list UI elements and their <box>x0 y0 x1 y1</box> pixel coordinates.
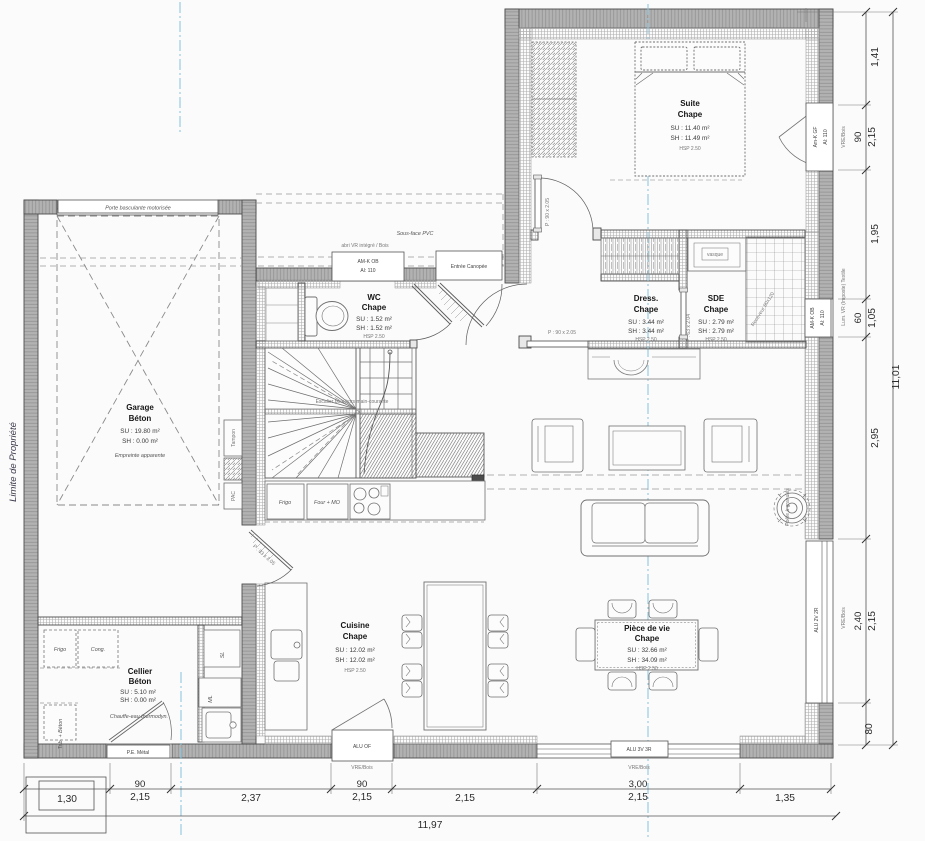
svg-text:2,15: 2,15 <box>867 611 878 631</box>
svg-text:AM-K OB: AM-K OB <box>810 307 816 329</box>
svg-text:Al: 110: Al: 110 <box>823 129 829 144</box>
svg-text:Four + MO: Four + MO <box>314 500 341 506</box>
svg-text:80: 80 <box>864 723 875 735</box>
svg-text:ML: ML <box>208 695 214 703</box>
svg-text:SU : 32.66 m²: SU : 32.66 m² <box>627 647 666 654</box>
svg-text:Frigo: Frigo <box>279 500 291 506</box>
svg-text:Lum. VR (Imposte) Textile: Lum. VR (Imposte) Textile <box>841 268 847 326</box>
svg-text:1,41: 1,41 <box>870 47 881 67</box>
svg-text:Frigo: Frigo <box>54 647 66 653</box>
svg-text:WC: WC <box>367 293 381 302</box>
svg-text:SL: SL <box>220 652 226 659</box>
svg-text:HSP 2.50: HSP 2.50 <box>363 334 385 340</box>
svg-text:VRE/Bois: VRE/Bois <box>841 126 847 148</box>
svg-text:Chauffe-eau thermodyn.: Chauffe-eau thermodyn. <box>110 714 168 720</box>
svg-text:HSP 2.50: HSP 2.50 <box>679 146 701 152</box>
svg-text:Cong.: Cong. <box>91 647 105 653</box>
svg-text:Cuisine: Cuisine <box>341 621 370 630</box>
svg-text:Garage: Garage <box>126 403 154 412</box>
svg-text:Cellier: Cellier <box>128 667 152 676</box>
svg-text:SDE: SDE <box>708 294 725 303</box>
svg-text:SH : 0.00 m²: SH : 0.00 m² <box>120 697 156 704</box>
svg-text:Chape: Chape <box>362 303 387 312</box>
svg-text:SH : 34.09 m²: SH : 34.09 m² <box>627 657 666 664</box>
svg-text:HSP 2.50: HSP 2.50 <box>344 668 366 674</box>
svg-text:SU : 2.79 m²: SU : 2.79 m² <box>698 319 734 326</box>
svg-text:2,40: 2,40 <box>853 612 864 631</box>
svg-text:1,30: 1,30 <box>57 794 77 805</box>
svg-text:SH : 11.49 m²: SH : 11.49 m² <box>671 135 710 142</box>
svg-text:VRE/Bois: VRE/Bois <box>628 765 650 771</box>
svg-text:Limite de Propriété: Limite de Propriété <box>8 422 19 502</box>
svg-text:Tab. + Béton: Tab. + Béton <box>58 719 64 750</box>
svg-text:SU : 5.10 m²: SU : 5.10 m² <box>120 689 156 696</box>
svg-text:2,37: 2,37 <box>241 793 261 804</box>
svg-text:Dress.: Dress. <box>634 294 658 303</box>
svg-text:P : 90 x 2.05: P : 90 x 2.05 <box>548 330 576 336</box>
svg-text:SU : 1.52 m²: SU : 1.52 m² <box>356 316 392 323</box>
svg-text:SH : 2.79 m²: SH : 2.79 m² <box>698 328 734 335</box>
svg-text:Béton: Béton <box>129 414 152 423</box>
svg-text:11,97: 11,97 <box>418 820 443 831</box>
svg-text:SU : 19.80 m²: SU : 19.80 m² <box>120 428 159 435</box>
svg-text:3,00: 3,00 <box>629 779 648 790</box>
svg-text:abri VR intégré / Bois: abri VR intégré / Bois <box>341 243 389 249</box>
svg-text:Al: 110: Al: 110 <box>820 310 826 325</box>
svg-text:Al: 110: Al: 110 <box>360 268 375 274</box>
svg-text:Chape: Chape <box>704 305 729 314</box>
svg-text:Sous-face PVC: Sous-face PVC <box>397 231 434 237</box>
svg-text:Suite: Suite <box>680 99 700 108</box>
svg-text:AM-K OB: AM-K OB <box>357 259 379 265</box>
svg-text:Tampon: Tampon <box>231 429 237 447</box>
svg-text:Porte basculante motorisée: Porte basculante motorisée <box>105 206 171 212</box>
svg-text:90: 90 <box>853 132 864 143</box>
svg-text:P : 63 x 2.04: P : 63 x 2.04 <box>686 314 692 342</box>
svg-text:Chape: Chape <box>678 110 703 119</box>
svg-text:SU : 3.44 m²: SU : 3.44 m² <box>628 319 664 326</box>
svg-text:Poêle à granulés: Poêle à granulés <box>785 488 791 526</box>
svg-text:90: 90 <box>135 779 146 790</box>
svg-text:Chape: Chape <box>634 305 659 314</box>
svg-text:Pièce de vie: Pièce de vie <box>624 624 670 633</box>
svg-text:Chape: Chape <box>635 634 660 643</box>
svg-text:2,15: 2,15 <box>867 127 878 147</box>
svg-text:Empreinte apparente: Empreinte apparente <box>115 453 165 459</box>
svg-text:VRE/Bois: VRE/Bois <box>841 607 847 629</box>
svg-text:2,15: 2,15 <box>628 792 648 803</box>
svg-text:SH : 1.52 m²: SH : 1.52 m² <box>356 325 392 332</box>
svg-text:90: 90 <box>357 779 368 790</box>
svg-text:vasque: vasque <box>707 252 723 258</box>
svg-text:11,01: 11,01 <box>891 364 902 389</box>
svg-text:HSP 2.50: HSP 2.50 <box>636 666 658 672</box>
svg-text:1,95: 1,95 <box>870 224 881 244</box>
svg-text:P.E. Métal: P.E. Métal <box>127 750 149 756</box>
svg-text:Béton: Béton <box>129 677 152 686</box>
svg-text:ALU OF: ALU OF <box>353 744 371 750</box>
svg-text:Entrée Canopée: Entrée Canopée <box>451 264 488 270</box>
svg-text:Am-K GF: Am-K GF <box>813 127 819 148</box>
svg-text:ALU 3V 3R: ALU 3V 3R <box>626 747 651 753</box>
svg-text:SU : 11.40 m²: SU : 11.40 m² <box>671 125 710 132</box>
svg-text:Escalier bois hors main-couran: Escalier bois hors main-courante <box>316 399 389 405</box>
svg-text:1,35: 1,35 <box>775 793 795 804</box>
svg-text:2,15: 2,15 <box>352 792 372 803</box>
svg-text:HSP 2.50: HSP 2.50 <box>705 337 727 343</box>
svg-text:SU : 12.02 m²: SU : 12.02 m² <box>335 647 374 654</box>
svg-text:2,15: 2,15 <box>455 793 475 804</box>
svg-text:1,05: 1,05 <box>867 308 878 328</box>
svg-text:VRE/Bois: VRE/Bois <box>351 765 373 771</box>
svg-text:Chape: Chape <box>343 632 368 641</box>
svg-text:SH : 0.00 m²: SH : 0.00 m² <box>122 438 158 445</box>
svg-text:ALU 2V 2R: ALU 2V 2R <box>814 607 820 632</box>
svg-text:2,15: 2,15 <box>130 792 150 803</box>
svg-text:SH : 3.44 m²: SH : 3.44 m² <box>628 328 664 335</box>
svg-text:60: 60 <box>853 313 864 324</box>
svg-text:PAC: PAC <box>231 491 237 501</box>
svg-text:2,95: 2,95 <box>870 428 881 448</box>
svg-text:HSP 2.50: HSP 2.50 <box>635 337 657 343</box>
svg-text:SH : 12.02 m²: SH : 12.02 m² <box>335 657 374 664</box>
svg-text:P : 90 x 2.05: P : 90 x 2.05 <box>545 198 551 226</box>
